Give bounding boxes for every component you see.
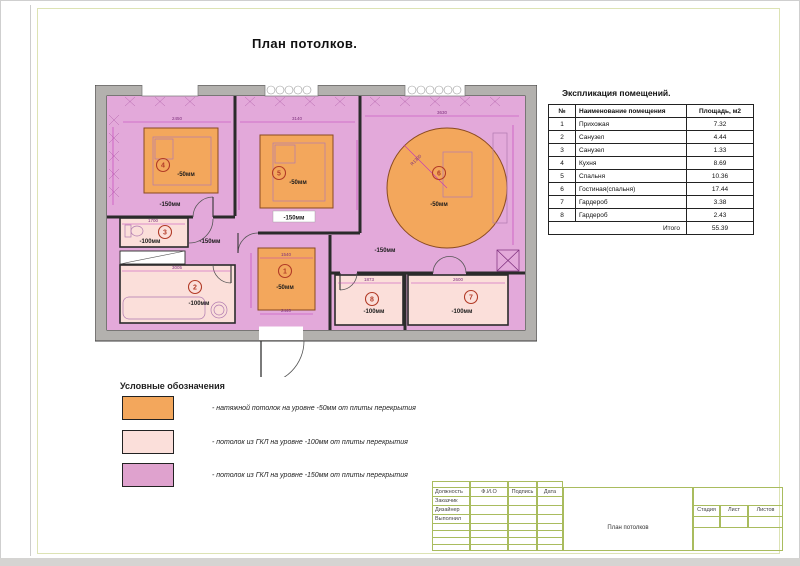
row-num: 3 xyxy=(549,144,576,157)
table-row: 4 Кухня 8.69 xyxy=(549,157,754,170)
binding-margin-line xyxy=(30,5,31,556)
room-2-level: -100мм xyxy=(189,301,210,307)
row-num: 6 xyxy=(549,183,576,196)
row-name: Санузел xyxy=(576,144,687,157)
row-num: 4 xyxy=(549,157,576,170)
legend-swatch-pink xyxy=(122,430,174,454)
dim-room1-bottom: 2440 xyxy=(281,308,292,313)
row-area: 8.69 xyxy=(687,157,754,170)
row-name: Гостиная(спальня) xyxy=(576,183,687,196)
row-area: 17.44 xyxy=(687,183,754,196)
dim-room5: 3140 xyxy=(292,116,303,121)
col-header-area: Площадь, м2 xyxy=(687,105,754,118)
room-1-stretch xyxy=(258,248,315,310)
row-name: Санузел xyxy=(576,131,687,144)
row-area: 4.44 xyxy=(687,131,754,144)
legend-item-gkl-100: - потолок из ГКЛ на уровне -100мм от пли… xyxy=(122,430,408,454)
table-row: 7 Гардероб 3.38 xyxy=(549,196,754,209)
row-name: Гардероб xyxy=(576,209,687,222)
row-num: 8 xyxy=(549,209,576,222)
explication-table: № Наименование помещения Площадь, м2 1 П… xyxy=(548,104,754,235)
table-row: 8 Гардероб 2.43 xyxy=(549,209,754,222)
dim-room7: 2600 xyxy=(453,277,464,282)
floor-plan: 2450 3140 3630 1700 3005 1540 2440 1873 … xyxy=(95,85,537,377)
room-7-level: -100мм xyxy=(452,309,473,315)
stamp-drawing-title: План потолков xyxy=(563,525,693,531)
legend-label: - потолок из ГКЛ на уровне -150мм от пли… xyxy=(212,472,408,479)
room-3-number: 3 xyxy=(163,230,167,237)
legend-label: - потолок из ГКЛ на уровне -100мм от пли… xyxy=(212,439,408,446)
legend-label: - натяжной потолок на уровне -50мм от пл… xyxy=(212,405,416,412)
entry-door-gap xyxy=(259,327,303,341)
table-row: 3 Санузел 1.33 xyxy=(549,144,754,157)
room-8-area xyxy=(335,275,403,325)
row-area: 10.36 xyxy=(687,170,754,183)
room-1-level: -50мм xyxy=(276,285,294,291)
dim-room4: 2450 xyxy=(172,116,183,121)
room-3-level: -100мм xyxy=(140,239,161,245)
page-title: План потолков. xyxy=(252,36,357,51)
explication-title: Экспликация помещений. xyxy=(562,88,671,98)
drawing-sheet: { "page": { "title": "План потолков." },… xyxy=(0,0,800,566)
col-header-name: Наименование помещения xyxy=(576,105,687,118)
legend-swatch-orange xyxy=(122,396,174,420)
room-7-number: 7 xyxy=(469,295,473,302)
hall-level-right: -150мм xyxy=(375,248,396,254)
bottom-gray-strip xyxy=(0,558,800,566)
room-4-zone-level: -150мм xyxy=(160,202,181,208)
stamp-title-cell xyxy=(563,487,693,551)
stamp-cell xyxy=(537,544,563,551)
row-num: 7 xyxy=(549,196,576,209)
row-area: 3.38 xyxy=(687,196,754,209)
row-name: Кухня xyxy=(576,157,687,170)
stamp-cell xyxy=(693,487,783,506)
row-area: 7.32 xyxy=(687,118,754,131)
row-num: 1 xyxy=(549,118,576,131)
room-5-level: -50мм xyxy=(289,180,307,186)
table-total-row: Итого 55.39 xyxy=(549,222,754,235)
room-4-number: 4 xyxy=(161,163,165,170)
room-2-number: 2 xyxy=(193,285,197,292)
entry-door-arc xyxy=(261,341,304,377)
row-name: Спальня xyxy=(576,170,687,183)
stamp-cell xyxy=(470,544,508,551)
table-header-row: № Наименование помещения Площадь, м2 xyxy=(549,105,754,118)
col-header-num: № xyxy=(549,105,576,118)
hall-level-left: -150мм xyxy=(200,239,221,245)
room-4-stretch xyxy=(144,128,218,193)
dim-room2: 3005 xyxy=(172,265,183,270)
room-8-level: -100мм xyxy=(364,309,385,315)
legend-title: Условные обозначения xyxy=(120,381,225,391)
room-6-number: 6 xyxy=(437,171,441,178)
stamp-cell xyxy=(693,527,783,551)
room-7-area xyxy=(408,275,508,325)
dim-room6: 3630 xyxy=(437,110,448,115)
total-value: 55.39 xyxy=(687,222,754,235)
room-5-stretch xyxy=(260,135,333,208)
room-8-number: 8 xyxy=(370,297,374,304)
dim-room3: 1700 xyxy=(148,218,159,223)
total-label: Итого xyxy=(549,222,687,235)
stamp-cell xyxy=(432,544,470,551)
room-1-number: 1 xyxy=(283,269,287,276)
table-row: 5 Спальня 10.36 xyxy=(549,170,754,183)
stamp-cell xyxy=(508,544,537,551)
dim-room8: 1873 xyxy=(364,277,375,282)
room-4-level: -50мм xyxy=(177,172,195,178)
table-row: 6 Гостиная(спальня) 17.44 xyxy=(549,183,754,196)
windows xyxy=(142,85,465,96)
row-num: 2 xyxy=(549,131,576,144)
row-area: 2.43 xyxy=(687,209,754,222)
legend-swatch-purple xyxy=(122,463,174,487)
room-6-level: -50мм xyxy=(430,202,448,208)
dim-room1-top: 1540 xyxy=(281,252,292,257)
legend-item-gkl-150: - потолок из ГКЛ на уровне -150мм от пли… xyxy=(122,463,408,487)
table-row: 1 Прихожая 7.32 xyxy=(549,118,754,131)
row-name: Гардероб xyxy=(576,196,687,209)
row-area: 1.33 xyxy=(687,144,754,157)
row-name: Прихожая xyxy=(576,118,687,131)
room-5-number: 5 xyxy=(277,171,281,178)
room-2-area xyxy=(120,265,235,323)
legend-item-stretch: - натяжной потолок на уровне -50мм от пл… xyxy=(122,396,416,420)
title-block: Должность Ф.И.О Подпись Дата Заказчик Ди… xyxy=(432,481,783,551)
window-kitchen xyxy=(142,85,198,96)
room-5-zone-level: -150мм xyxy=(284,216,305,222)
table-row: 2 Санузел 4.44 xyxy=(549,131,754,144)
row-num: 5 xyxy=(549,170,576,183)
